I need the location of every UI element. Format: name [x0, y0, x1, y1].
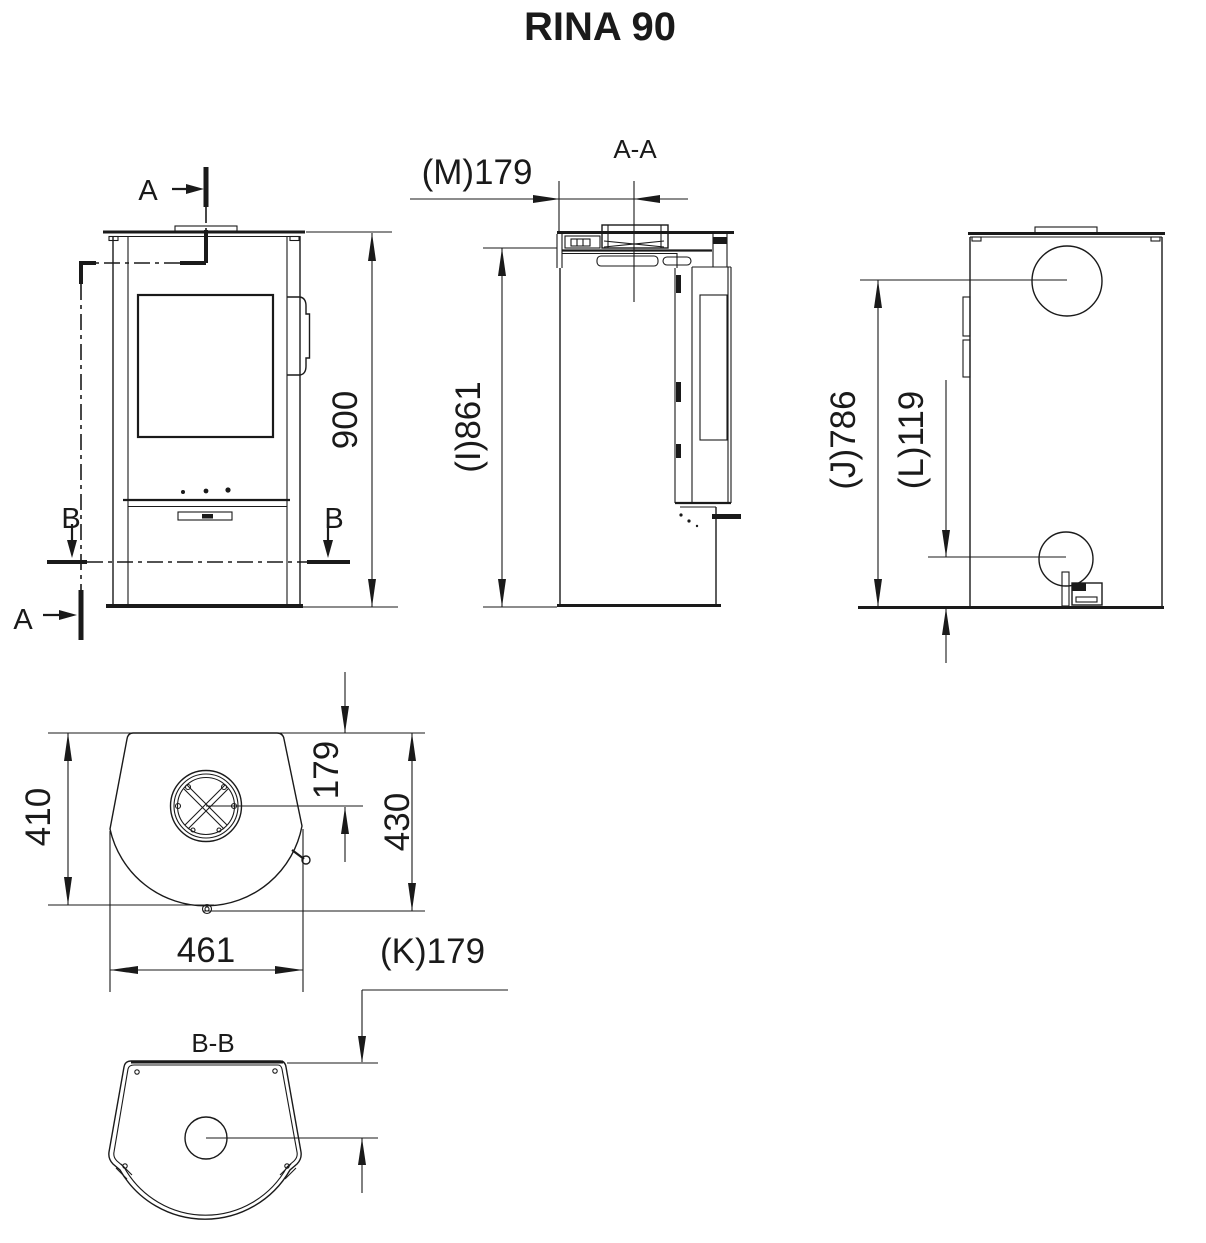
- rear-air-intake: [1039, 532, 1093, 586]
- section-marker-a-bottom: A: [13, 604, 33, 636]
- dim-flue-offset: (M)179: [422, 153, 533, 192]
- technical-drawing-page: RINA 90: [0, 0, 1206, 1243]
- section-marker-b-left: B: [61, 503, 80, 535]
- cut-label-b-b: B-B: [191, 1028, 234, 1058]
- side-handle-bar: [712, 514, 741, 519]
- dim-back-intake-height: (L)119: [892, 380, 1066, 663]
- section-a-a-view: (M)179 A-A: [410, 134, 741, 607]
- svg-text:(I)861: (I)861: [449, 381, 488, 472]
- bb-outline-inner: [114, 1065, 297, 1215]
- front-view: [103, 226, 310, 606]
- svg-text:900: 900: [326, 391, 365, 449]
- drawing-title: RINA 90: [524, 5, 676, 49]
- dim-top-410: 410: [19, 733, 72, 905]
- dimension-drawing: RINA 90: [0, 0, 1206, 1243]
- svg-text:(J)786: (J)786: [824, 390, 863, 489]
- dim-top-179: 179: [307, 672, 349, 862]
- cut-label-a-a: A-A: [613, 134, 657, 164]
- dim-top-461: 461: [110, 931, 303, 974]
- section-line-a: A A: [13, 167, 206, 640]
- top-view-outline: [110, 733, 302, 906]
- section-marker-b-right: B: [324, 503, 343, 535]
- svg-text:(L)119: (L)119: [892, 391, 931, 490]
- section-marker-a-top: A: [138, 175, 158, 207]
- section-b-b-view: B-B: [109, 1028, 301, 1219]
- front-door-glass: [138, 295, 273, 437]
- top-flue-outlet: [1032, 246, 1102, 316]
- dim-front-height: 900: [303, 232, 398, 607]
- dim-side-height: (I)861: [449, 248, 557, 607]
- svg-text:430: 430: [378, 793, 417, 851]
- dim-top-430: 430: [378, 733, 417, 911]
- side-door-glass: [700, 295, 727, 440]
- bb-outline-outer: [109, 1061, 301, 1219]
- svg-text:179: 179: [307, 741, 346, 799]
- svg-text:410: 410: [19, 788, 58, 846]
- front-door-handle: [287, 297, 310, 375]
- svg-text:461: 461: [177, 931, 235, 970]
- top-view: 410 179 430 461: [19, 672, 425, 992]
- svg-text:(K)179: (K)179: [380, 932, 485, 971]
